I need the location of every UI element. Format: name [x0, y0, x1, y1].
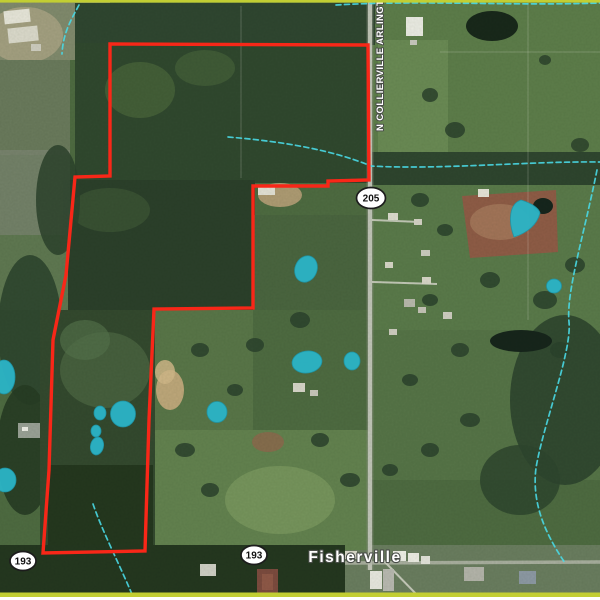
town-label: Fisherville: [308, 549, 401, 566]
route-shield-number: 193: [246, 551, 263, 562]
pond-highlight: [207, 402, 227, 423]
pond-highlight: [91, 425, 101, 437]
route-shield: 193: [10, 552, 36, 571]
route-shield: 193: [241, 546, 267, 565]
road-name-label: N COLLIERVILLE ARLINGTON: [375, 0, 386, 131]
pond-highlight: [111, 401, 136, 427]
route-strip-top: [0, 0, 600, 3]
satellite-imagery: [0, 0, 600, 598]
route-shield-number: 205: [363, 194, 380, 205]
route-strip-bottom: [0, 593, 600, 598]
route-shield-number: 193: [15, 557, 32, 568]
map-viewport[interactable]: 205193193 N COLLIERVILLE ARLINGTON Fishe…: [0, 0, 600, 600]
pond-highlight: [344, 352, 360, 370]
route-shield: 205: [357, 188, 386, 209]
pond-highlight: [547, 279, 562, 293]
pond-highlight: [94, 406, 106, 420]
